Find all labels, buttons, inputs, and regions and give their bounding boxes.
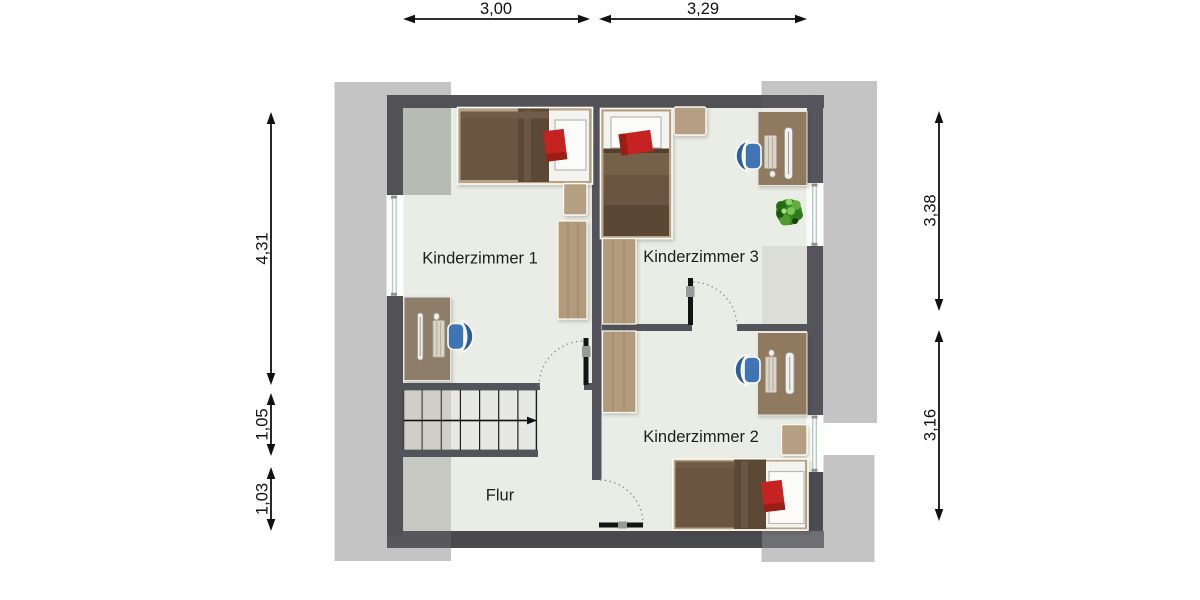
svg-text:1,03: 1,03 [254,483,272,515]
svg-text:3,00: 3,00 [480,0,512,18]
svg-text:4,31: 4,31 [254,232,272,264]
svg-text:3,38: 3,38 [922,194,940,226]
svg-text:3,29: 3,29 [687,0,719,18]
svg-text:3,16: 3,16 [922,409,940,441]
svg-text:Kinderzimmer 1: Kinderzimmer 1 [422,250,538,268]
svg-text:Kinderzimmer 3: Kinderzimmer 3 [643,248,759,266]
svg-text:Kinderzimmer 2: Kinderzimmer 2 [643,428,759,446]
svg-text:Flur: Flur [486,487,515,505]
svg-text:1,05: 1,05 [254,408,272,440]
